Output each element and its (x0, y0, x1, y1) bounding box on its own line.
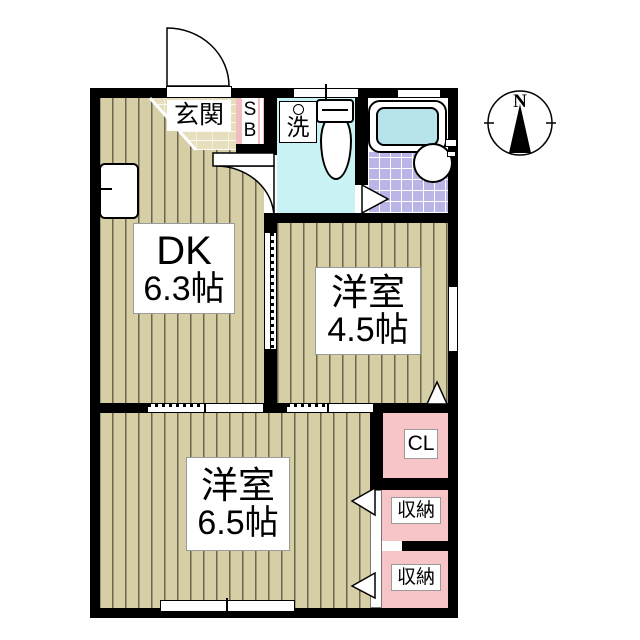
window-bathroom-top (397, 89, 441, 98)
wall-mid-left (90, 403, 147, 413)
bathtub-water (376, 107, 439, 146)
storage-lower-label-box: 収納 (391, 564, 441, 591)
closet-cl-label-box: CL (404, 429, 438, 459)
sliding-door-dk-65-b (205, 403, 264, 413)
storage-door-track (370, 490, 382, 608)
room65-label-box: 洋室 6.5帖 (186, 457, 290, 551)
sliding-door-dk-45-b (270, 232, 277, 350)
room45-name: 洋室 (331, 274, 405, 313)
toilet-tank-line (322, 109, 348, 111)
sliding-door-45-65-b (328, 403, 374, 413)
floor-plan: S B N 玄関 (0, 0, 640, 640)
compass-icon: N (484, 91, 556, 155)
entrance-door-arc (167, 28, 229, 86)
dk-label-box: DK 6.3帖 (133, 223, 235, 314)
window-washroom-tick (325, 84, 327, 100)
wall-washroom-bottom (264, 213, 458, 223)
compass-needle (509, 104, 531, 153)
kitchen-tap (94, 188, 112, 190)
wall-washroom-left (264, 98, 277, 155)
compass-north-label: N (513, 91, 527, 112)
bath-basin-icon (413, 143, 453, 183)
washroom-label-box: 洗 (279, 101, 317, 143)
wall-mid-right (372, 403, 458, 413)
wall-under-shoebox (236, 143, 266, 155)
bath-faucet-icon-2 (447, 151, 456, 157)
shoe-box-letter-s: S (244, 100, 257, 121)
storage-upper-label: 収納 (397, 501, 435, 521)
shoe-box-label-strip: S B (242, 98, 258, 144)
room65-size: 6.5帖 (197, 506, 278, 542)
dk-size: 6.3帖 (143, 272, 224, 308)
shoe-box-letter-b: B (244, 121, 257, 142)
kitchen-counter (99, 163, 139, 219)
window-room45-right (448, 286, 458, 352)
wall-closet-bottom (370, 478, 458, 490)
entrance-threshold (166, 86, 232, 98)
storage-upper-label-box: 収納 (391, 497, 441, 524)
closet-cl-label: CL (408, 433, 435, 455)
dk-name: DK (156, 230, 212, 272)
toilet-tank-icon (316, 99, 354, 123)
entrance-label: 玄関 (174, 102, 224, 128)
entrance-label-box: 玄関 (167, 100, 231, 131)
room65-name: 洋室 (201, 467, 275, 506)
room45-label-box: 洋室 4.5帖 (315, 267, 421, 355)
sliding-door-dk-65-a (147, 403, 205, 413)
window-room65-tick (226, 598, 228, 614)
washroom-label: 洗 (287, 115, 310, 139)
wall-storage-divider (402, 541, 458, 551)
wall-closet-left (370, 413, 383, 485)
sliding-door-45-65-a (286, 403, 328, 413)
wall-washroom-bathroom (355, 98, 368, 185)
room45-size: 4.5帖 (327, 313, 408, 349)
bath-faucet-icon (445, 139, 457, 147)
storage-lower-label: 収納 (397, 568, 435, 588)
wall-mid-center (262, 403, 286, 413)
